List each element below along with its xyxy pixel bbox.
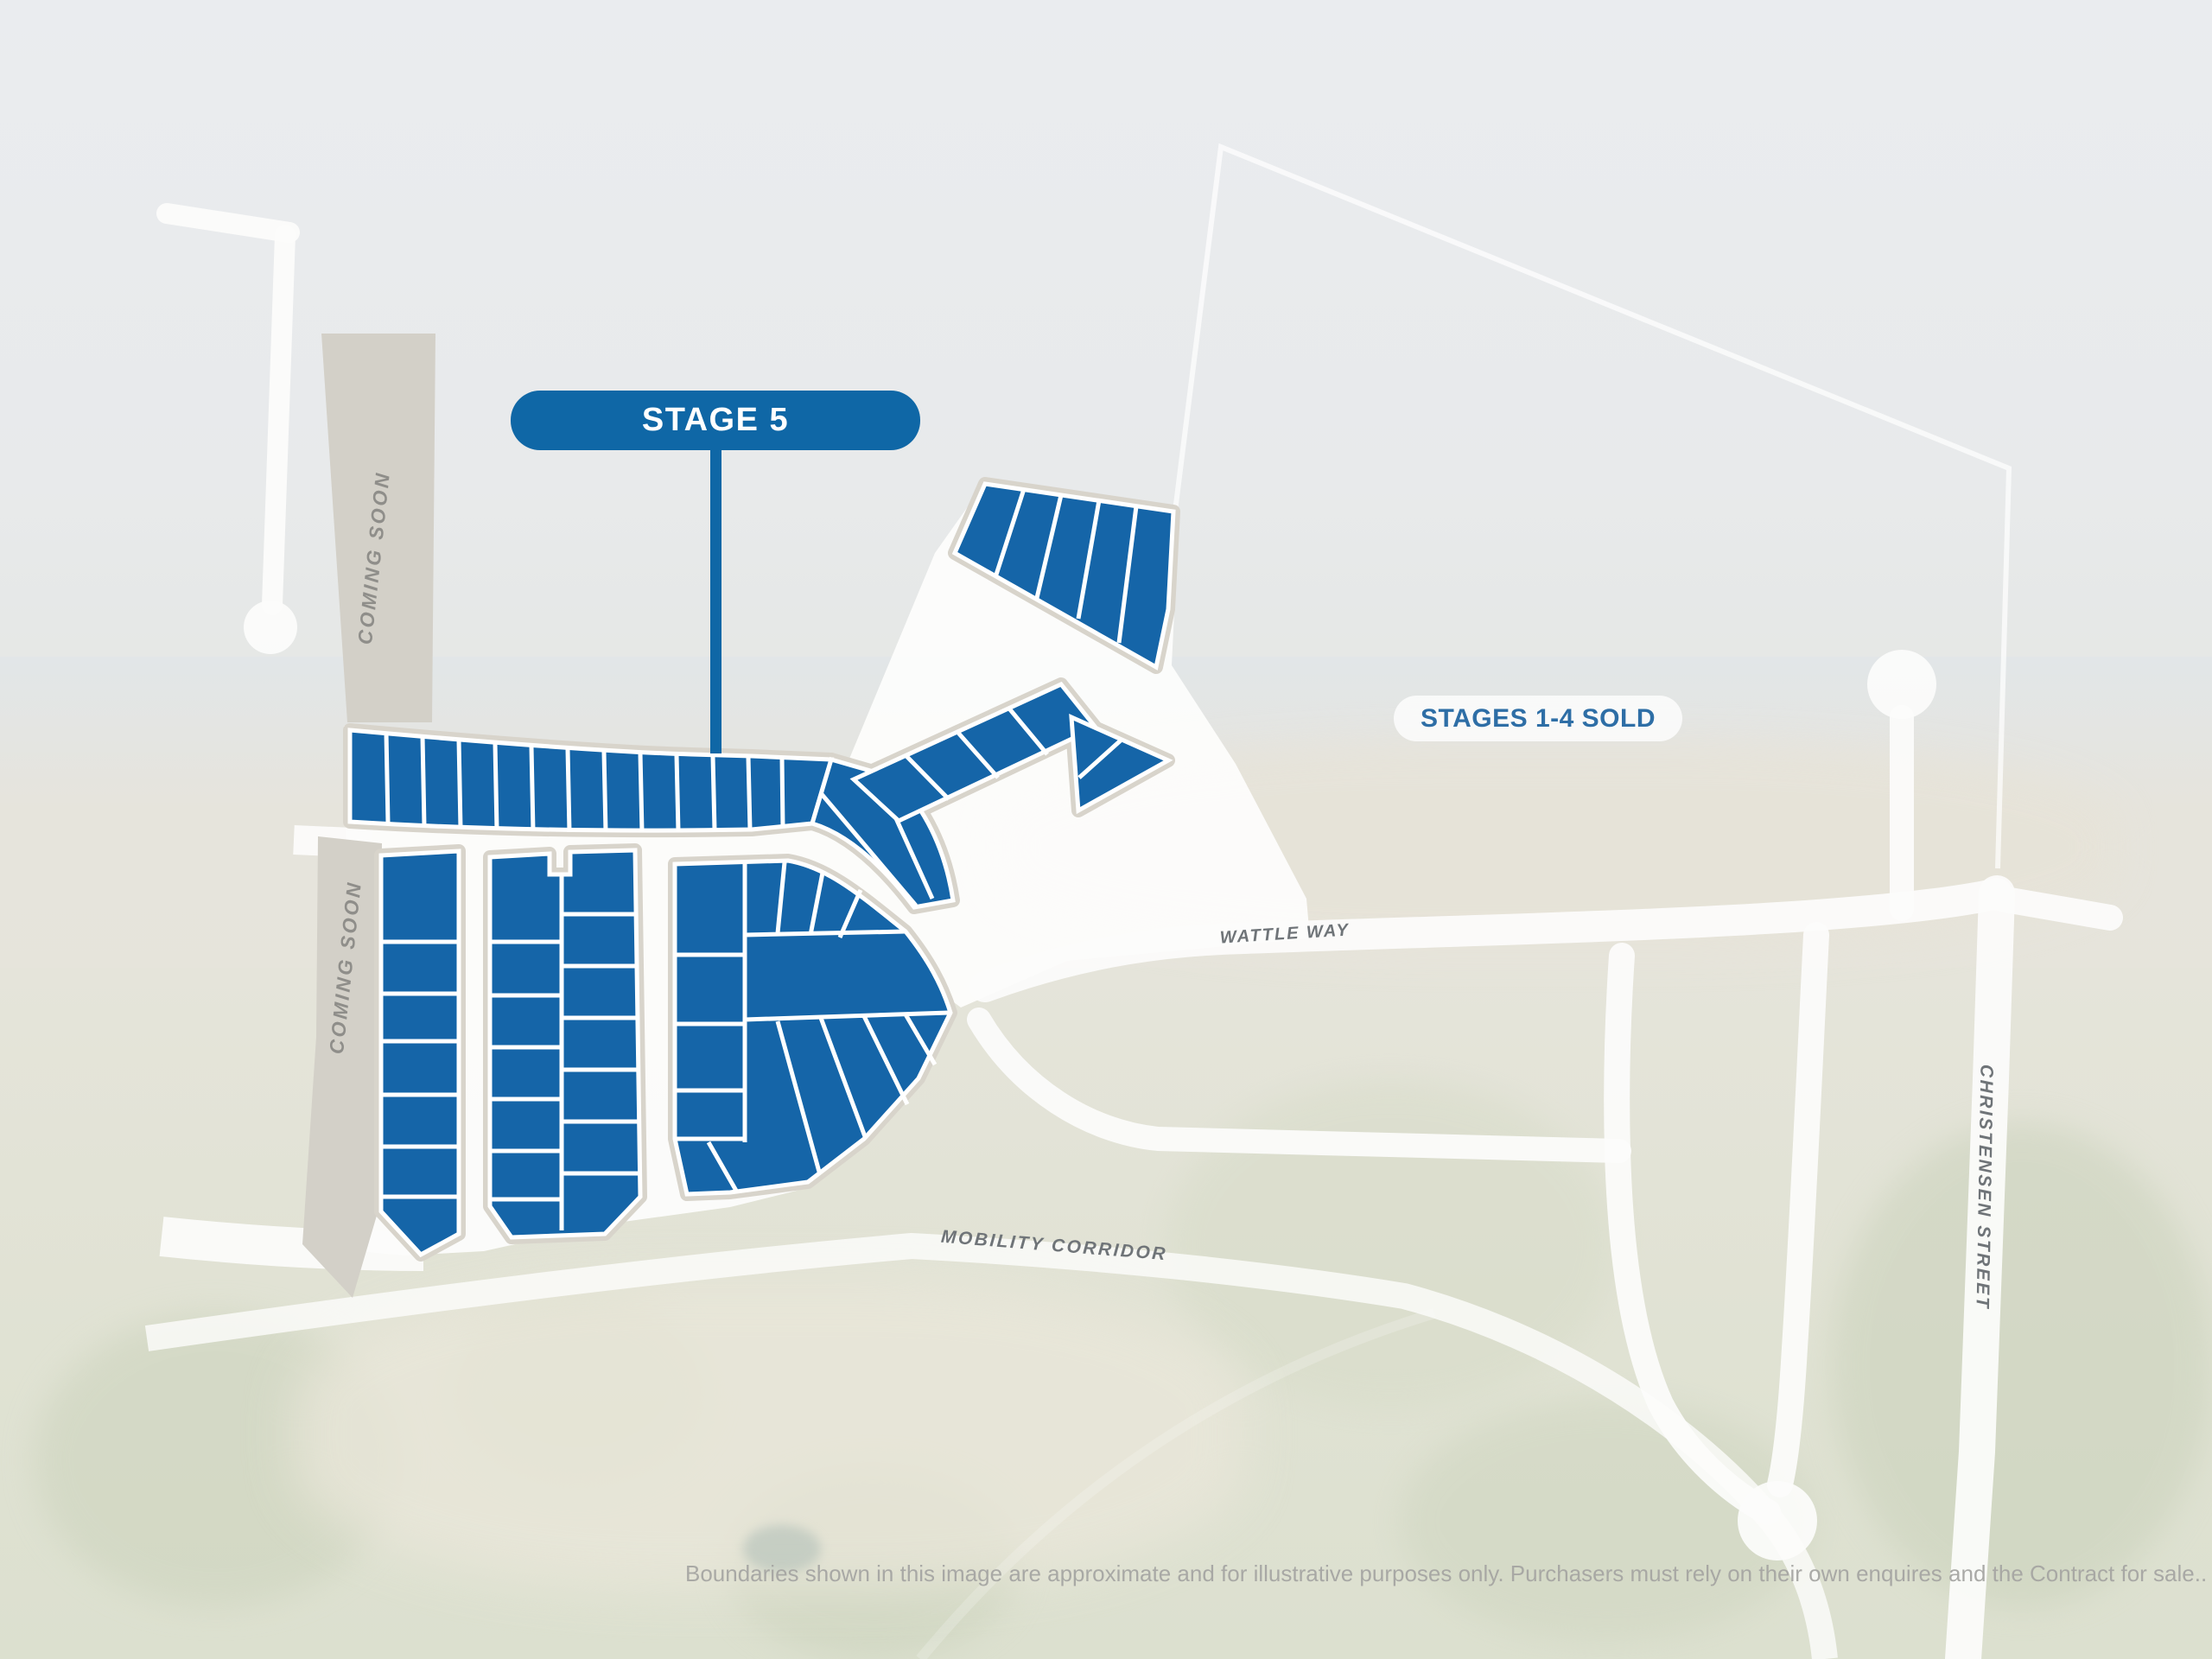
mobility-corridor-road [147, 1246, 1825, 1659]
culdesac-circle-top-left [244, 601, 297, 654]
lot-block-middle [490, 850, 640, 1237]
estate-boundary-line [1168, 147, 2009, 868]
stage5-pill[interactable]: STAGE 5 [511, 391, 920, 450]
road-cross-link [979, 1020, 1619, 1151]
disclaimer-text: Boundaries shown in this image are appro… [685, 1560, 2206, 1587]
road-south-2 [1780, 935, 1816, 1484]
lot-block-left [381, 851, 459, 1255]
stage5-pill-label: STAGE 5 [642, 402, 789, 439]
stage5-leader-line [710, 448, 721, 753]
faded-photo-road [920, 1313, 1434, 1659]
stages-1-4-sold-label: STAGES 1-4 SOLD [1421, 704, 1656, 734]
culdesac-circle-north [1867, 650, 1936, 719]
stages-1-4-sold-pill[interactable]: STAGES 1-4 SOLD [1394, 696, 1682, 741]
masterplan-map: STAGE 5 STAGES 1-4 SOLD COMING SOON COMI… [0, 0, 2212, 1659]
road-top-left [272, 235, 285, 605]
culdesac-circle-south [1738, 1481, 1817, 1560]
map-vector-layer [0, 0, 2212, 1659]
road-top-left-stub [167, 213, 289, 232]
road-stub-east [2000, 899, 2110, 918]
